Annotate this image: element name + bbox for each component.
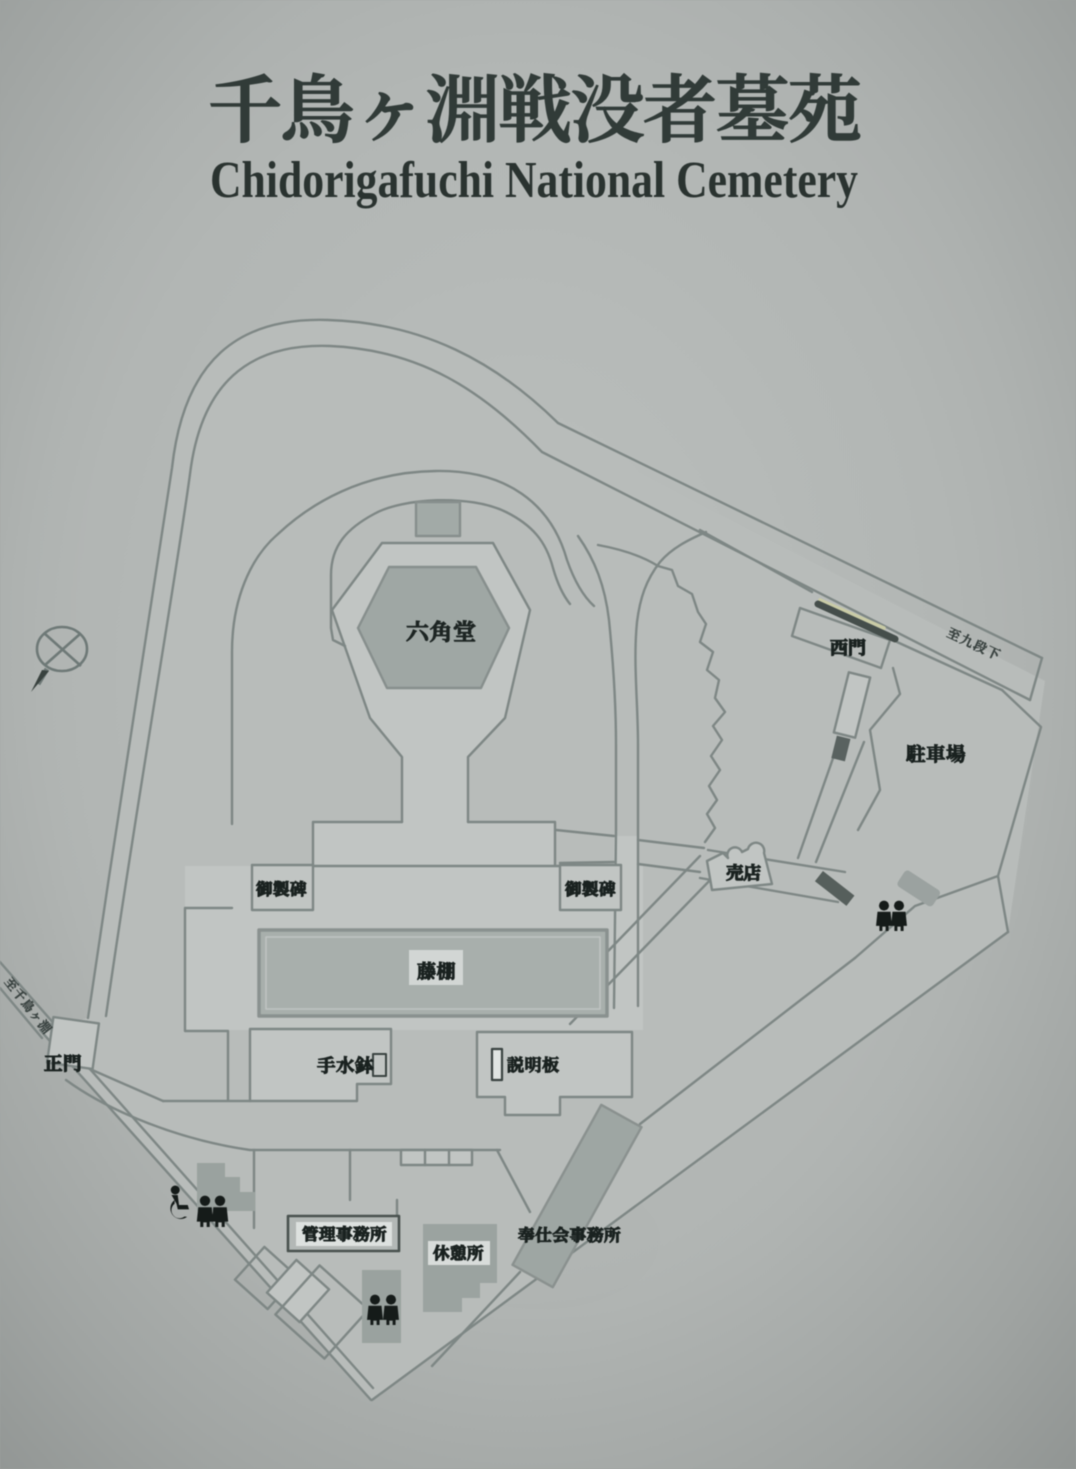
- svg-text:Chidorigafuchi National Cemete: Chidorigafuchi National Cemetery: [210, 152, 858, 209]
